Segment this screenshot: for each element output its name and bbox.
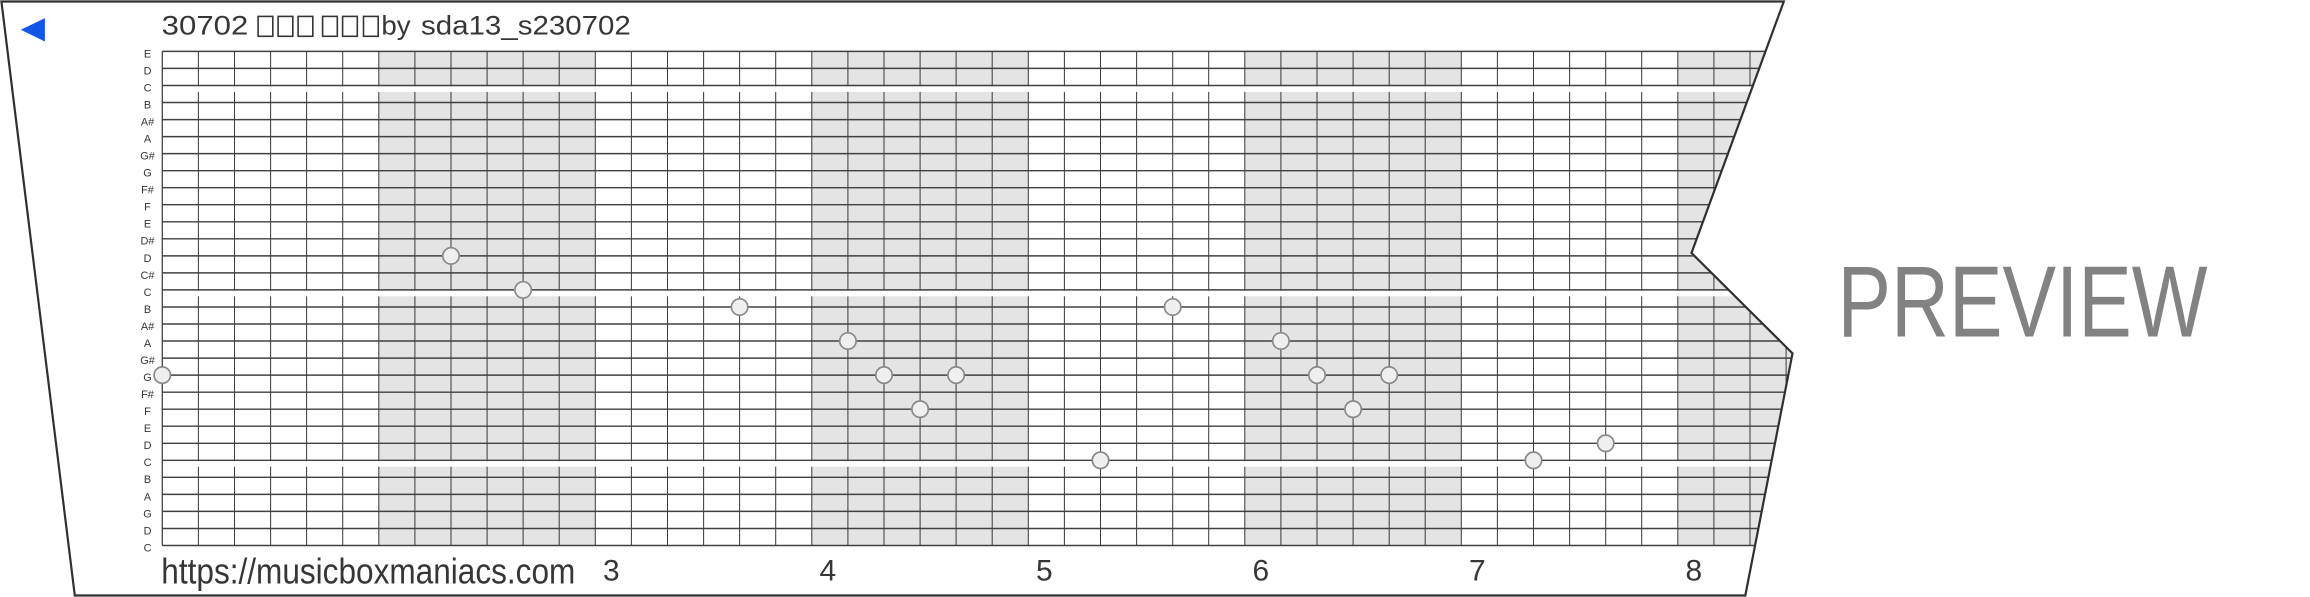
svg-text:A: A [144, 134, 152, 146]
svg-text:C: C [144, 287, 152, 299]
svg-text:E: E [144, 219, 151, 231]
svg-text:https://musicboxmaniacs.com: https://musicboxmaniacs.com [161, 551, 575, 592]
svg-text:PREVIEW: PREVIEW [1838, 245, 2208, 359]
svg-text:D: D [144, 253, 152, 265]
svg-text:D: D [144, 440, 152, 452]
svg-text:F: F [144, 202, 151, 214]
svg-text:by: by [381, 10, 411, 40]
svg-text:B: B [144, 474, 151, 486]
svg-text:D: D [144, 65, 152, 77]
svg-text:7: 7 [1469, 555, 1486, 588]
svg-text:B: B [144, 304, 151, 316]
svg-text:G: G [143, 168, 151, 180]
svg-text:G: G [143, 508, 151, 520]
svg-text:A: A [144, 491, 152, 503]
svg-text:4: 4 [819, 555, 836, 588]
svg-text:E: E [144, 48, 151, 60]
svg-text:E: E [144, 423, 151, 435]
svg-text:G#: G# [140, 151, 155, 163]
svg-text:C: C [144, 542, 152, 554]
svg-text:3: 3 [603, 555, 620, 588]
svg-text:30702: 30702 [162, 10, 249, 40]
svg-text:5: 5 [1036, 555, 1053, 588]
svg-text:A#: A# [141, 117, 154, 129]
svg-text:G: G [143, 372, 151, 384]
svg-text:F: F [144, 406, 151, 418]
svg-text:6: 6 [1252, 555, 1269, 588]
svg-text:A: A [144, 338, 152, 350]
svg-text:D#: D# [141, 236, 155, 248]
svg-text:A#: A# [141, 321, 154, 333]
svg-text:C: C [144, 82, 152, 94]
svg-text:B: B [144, 99, 151, 111]
svg-text:C: C [144, 457, 152, 469]
svg-text:G#: G# [140, 355, 155, 367]
svg-text:F#: F# [141, 185, 154, 197]
svg-text:D: D [144, 525, 152, 537]
svg-text:sda13_s230702: sda13_s230702 [421, 10, 631, 40]
svg-text:C#: C# [141, 270, 155, 282]
svg-text:F#: F# [141, 389, 154, 401]
svg-text:8: 8 [1685, 555, 1702, 588]
